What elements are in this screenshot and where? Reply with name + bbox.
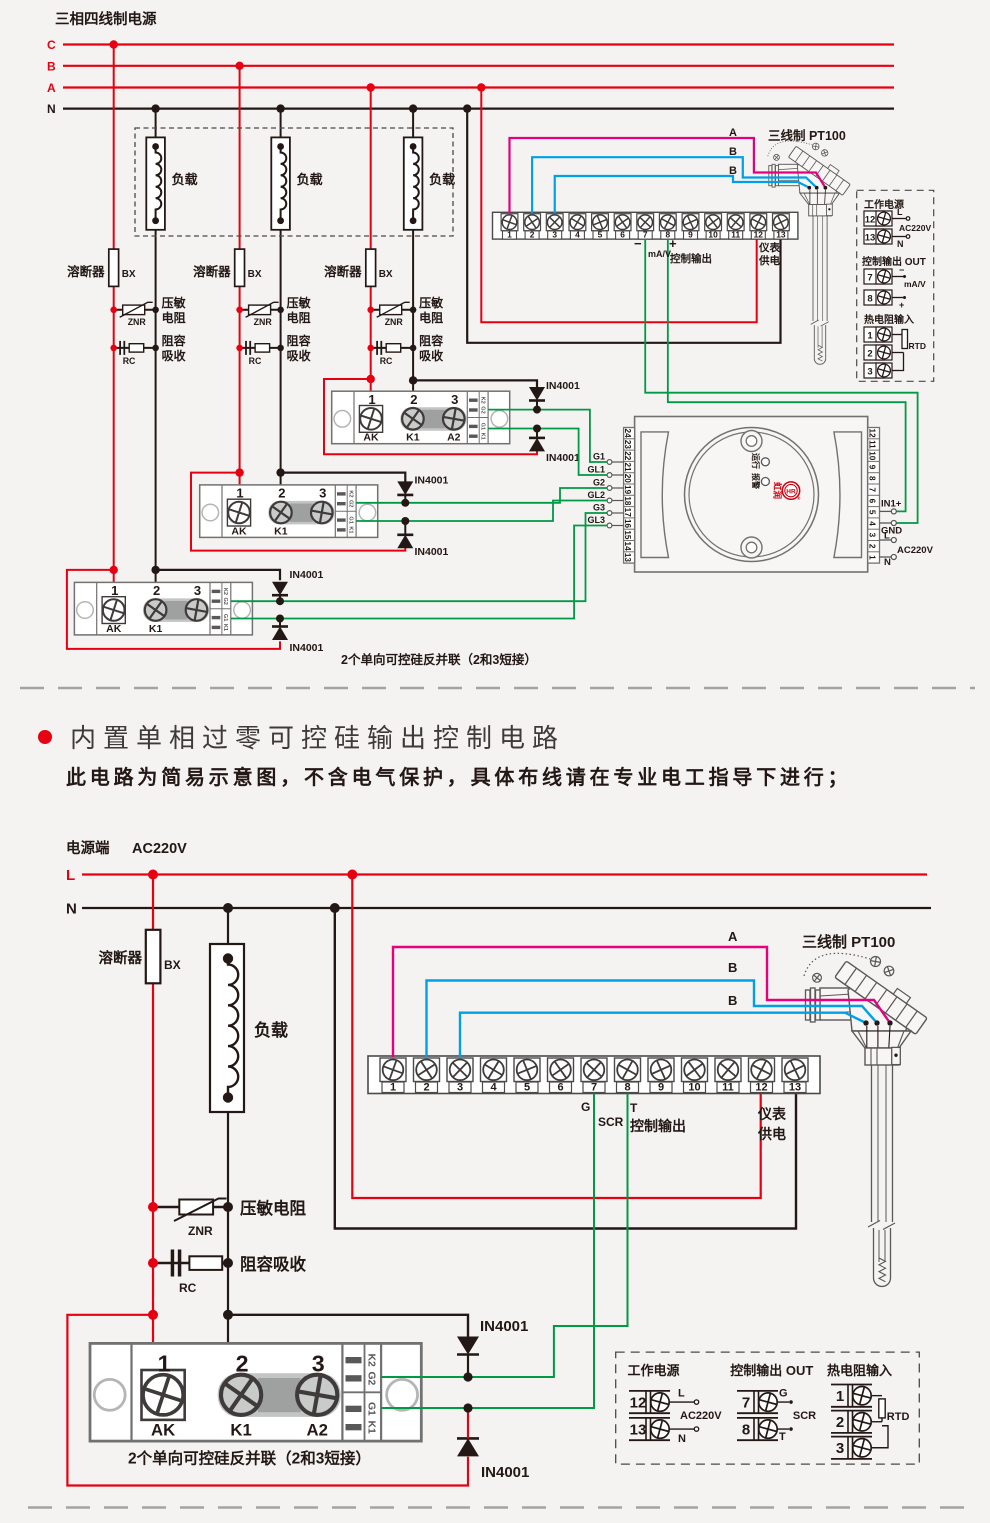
svg-text:13: 13: [789, 1082, 801, 1094]
svg-text:4: 4: [490, 1082, 497, 1094]
svg-text:G2: G2: [366, 1371, 377, 1385]
svg-text:电阻: 电阻: [419, 310, 443, 325]
svg-text:N: N: [884, 557, 891, 568]
svg-text:AK: AK: [151, 1421, 175, 1440]
svg-text:K1: K1: [222, 624, 228, 631]
svg-text:L: L: [884, 531, 890, 542]
svg-text:负载: 负载: [254, 1020, 288, 1040]
svg-text:8: 8: [868, 476, 877, 481]
svg-text:IN4001: IN4001: [415, 475, 449, 487]
svg-text:RC: RC: [179, 1281, 197, 1295]
svg-text:G1: G1: [366, 1402, 377, 1416]
svg-text:阻容吸收: 阻容吸收: [240, 1254, 307, 1274]
svg-text:供电: 供电: [757, 1126, 786, 1142]
svg-text:1: 1: [868, 555, 877, 560]
svg-text:3: 3: [867, 367, 872, 378]
svg-text:2: 2: [868, 544, 877, 549]
svg-text:1: 1: [111, 583, 118, 598]
svg-text:12: 12: [630, 1395, 647, 1412]
svg-text:N: N: [897, 239, 904, 249]
svg-text:运行: 运行: [751, 453, 761, 469]
svg-text:5: 5: [524, 1082, 530, 1094]
svg-text:−: −: [899, 265, 904, 275]
svg-text:B: B: [729, 165, 737, 177]
svg-text:吸收: 吸收: [162, 348, 186, 363]
svg-text:1: 1: [390, 1082, 396, 1094]
svg-text:A: A: [729, 127, 737, 139]
svg-text:RC: RC: [249, 356, 262, 366]
svg-text:K1: K1: [366, 1420, 377, 1434]
svg-text:7: 7: [742, 1395, 750, 1412]
svg-text:12: 12: [865, 215, 876, 226]
svg-text:控制输出: 控制输出: [670, 252, 712, 265]
svg-text:电源端: 电源端: [66, 839, 110, 857]
svg-text:3: 3: [836, 1440, 844, 1457]
svg-text:+: +: [669, 236, 677, 251]
svg-text:工作电源: 工作电源: [628, 1363, 680, 1378]
svg-text:B: B: [47, 59, 56, 73]
svg-text:AC220V: AC220V: [680, 1410, 722, 1422]
svg-text:19: 19: [623, 485, 632, 495]
svg-text:8: 8: [867, 294, 872, 305]
svg-text:9: 9: [658, 1082, 664, 1094]
svg-text:ZNR: ZNR: [128, 317, 147, 327]
svg-text:K1: K1: [479, 433, 485, 440]
svg-text:12: 12: [868, 429, 877, 439]
svg-text:K1: K1: [149, 623, 163, 635]
svg-text:ZNR: ZNR: [188, 1224, 213, 1238]
svg-text:供电: 供电: [758, 254, 780, 267]
svg-text:10: 10: [708, 230, 718, 240]
svg-text:L: L: [678, 1388, 685, 1400]
svg-text:1: 1: [867, 331, 873, 342]
svg-text:虹润: 虹润: [773, 482, 783, 500]
svg-text:溶断器: 溶断器: [193, 264, 231, 279]
svg-text:14: 14: [623, 542, 632, 552]
svg-text:IN1+: IN1+: [881, 499, 902, 510]
svg-text:17: 17: [623, 508, 632, 518]
svg-text:6: 6: [557, 1082, 563, 1094]
svg-text:N: N: [66, 901, 77, 918]
svg-text:G1: G1: [479, 423, 485, 430]
svg-text:吸收: 吸收: [419, 348, 443, 363]
svg-text:2个单向可控硅反并联（2和3短接）: 2个单向可控硅反并联（2和3短接）: [341, 652, 537, 667]
svg-text:吸收: 吸收: [287, 348, 311, 363]
svg-text:压敏: 压敏: [419, 295, 444, 310]
svg-text:5: 5: [598, 230, 603, 240]
svg-text:溶断器: 溶断器: [67, 264, 105, 279]
svg-text:AC220V: AC220V: [897, 545, 934, 556]
svg-text:仪表: 仪表: [757, 1106, 787, 1122]
svg-text:阻容: 阻容: [419, 333, 443, 348]
svg-text:20: 20: [623, 474, 632, 484]
svg-text:G1: G1: [222, 614, 228, 621]
svg-text:12: 12: [754, 230, 764, 240]
svg-text:GL3: GL3: [587, 515, 605, 525]
svg-text:2: 2: [836, 1414, 844, 1431]
svg-text:BX: BX: [164, 958, 181, 972]
svg-text:K2: K2: [366, 1353, 377, 1367]
svg-text:G2: G2: [593, 478, 605, 488]
svg-text:三线制 PT100: 三线制 PT100: [768, 128, 846, 143]
svg-text:电阻: 电阻: [162, 310, 186, 325]
svg-text:IN4001: IN4001: [481, 1464, 529, 1481]
svg-text:11: 11: [731, 230, 740, 240]
svg-text:AC220V: AC220V: [899, 223, 931, 233]
svg-text:T: T: [779, 1431, 786, 1443]
svg-text:1: 1: [507, 230, 512, 240]
svg-text:IN4001: IN4001: [480, 1318, 528, 1335]
svg-text:2: 2: [278, 486, 285, 501]
svg-text:RC: RC: [380, 356, 393, 366]
svg-text:6: 6: [620, 230, 625, 240]
svg-text:压敏: 压敏: [287, 295, 312, 310]
svg-text:2个单向可控硅反并联（2和3短接）: 2个单向可控硅反并联（2和3短接）: [128, 1449, 371, 1468]
svg-text:负载: 负载: [172, 172, 198, 187]
svg-text:L: L: [66, 867, 75, 884]
svg-text:电阻: 电阻: [287, 310, 311, 325]
svg-text:3: 3: [319, 486, 326, 501]
svg-text:RC: RC: [123, 356, 136, 366]
svg-text:21: 21: [623, 462, 632, 472]
svg-text:阻容: 阻容: [162, 333, 186, 348]
svg-text:13: 13: [630, 1422, 647, 1439]
svg-text:IN4001: IN4001: [290, 642, 324, 654]
svg-text:15: 15: [623, 530, 632, 540]
svg-text:3: 3: [457, 1082, 463, 1094]
svg-text:GL2: GL2: [587, 490, 605, 500]
svg-text:N: N: [47, 102, 56, 116]
svg-text:24: 24: [623, 429, 632, 439]
svg-text:A: A: [728, 929, 738, 944]
svg-text:压敏: 压敏: [162, 295, 187, 310]
svg-text:A2: A2: [306, 1421, 327, 1440]
svg-text:10: 10: [868, 451, 877, 461]
svg-text:ZNR: ZNR: [385, 317, 404, 327]
svg-text:ZNR: ZNR: [254, 317, 273, 327]
svg-text:溶断器: 溶断器: [324, 264, 362, 279]
svg-text:溶断器: 溶断器: [99, 949, 143, 967]
svg-text:11: 11: [868, 440, 877, 449]
svg-text:AK: AK: [106, 623, 122, 635]
svg-text:3: 3: [194, 583, 201, 598]
svg-text:13: 13: [623, 553, 632, 563]
svg-text:2: 2: [153, 583, 160, 598]
svg-text:1: 1: [158, 1351, 171, 1377]
svg-text:1: 1: [368, 392, 375, 407]
svg-text:7: 7: [643, 230, 648, 240]
svg-text:阻容: 阻容: [287, 333, 311, 348]
svg-text:K1: K1: [347, 526, 353, 533]
svg-text:G2: G2: [479, 406, 485, 413]
svg-text:T: T: [630, 1101, 638, 1115]
svg-text:18: 18: [623, 496, 632, 506]
svg-text:8: 8: [624, 1082, 630, 1094]
svg-text:三相四线制电源: 三相四线制电源: [55, 10, 157, 28]
svg-text:RTD: RTD: [887, 1411, 910, 1423]
svg-text:BX: BX: [379, 269, 393, 280]
svg-text:C: C: [47, 38, 56, 52]
svg-text:G2: G2: [222, 597, 228, 604]
svg-text:4: 4: [575, 230, 580, 240]
svg-text:6: 6: [868, 499, 877, 504]
svg-text:3: 3: [451, 392, 458, 407]
svg-text:7: 7: [867, 273, 872, 284]
svg-text:5: 5: [868, 510, 877, 515]
svg-text:B: B: [728, 960, 737, 975]
svg-text:热电阻输入: 热电阻输入: [827, 1363, 892, 1378]
svg-text:压敏电阻: 压敏电阻: [240, 1198, 307, 1218]
svg-text:K1: K1: [230, 1421, 251, 1440]
svg-text:N: N: [678, 1433, 686, 1445]
svg-text:2: 2: [410, 392, 417, 407]
svg-text:2: 2: [530, 230, 535, 240]
svg-text:仪表: 仪表: [758, 241, 780, 254]
svg-text:2: 2: [236, 1351, 249, 1377]
svg-text:mA/V: mA/V: [648, 249, 671, 259]
svg-text:12: 12: [755, 1082, 767, 1094]
svg-text:负载: 负载: [429, 172, 455, 187]
svg-text:8: 8: [742, 1422, 750, 1439]
svg-text:内置单相过零可控硅输出控制电路: 内置单相过零可控硅输出控制电路: [70, 723, 565, 753]
svg-text:K2: K2: [347, 490, 353, 497]
svg-text:A2: A2: [447, 432, 461, 444]
svg-text:BX: BX: [122, 269, 136, 280]
svg-text:22: 22: [623, 451, 632, 461]
svg-text:AK: AK: [231, 525, 247, 537]
svg-text:G1: G1: [347, 516, 353, 523]
svg-text:G: G: [779, 1388, 788, 1400]
svg-text:7: 7: [868, 487, 877, 492]
svg-text:IN4001: IN4001: [546, 452, 580, 464]
svg-text:SCR: SCR: [793, 1410, 816, 1422]
svg-text:K2: K2: [479, 397, 485, 404]
svg-text:1: 1: [236, 486, 243, 501]
svg-text:11: 11: [722, 1082, 734, 1094]
svg-text:热电阻输入: 热电阻输入: [864, 313, 914, 326]
svg-text:控制输出 OUT: 控制输出 OUT: [862, 255, 926, 268]
svg-text:HR: HR: [786, 489, 796, 496]
svg-text:B: B: [728, 993, 737, 1008]
svg-text:G3: G3: [593, 503, 605, 513]
svg-text:3: 3: [312, 1351, 325, 1377]
svg-text:GL1: GL1: [587, 465, 605, 475]
svg-text:BX: BX: [248, 269, 262, 280]
svg-text:控制输出 OUT: 控制输出 OUT: [730, 1363, 813, 1378]
svg-text:三线制 PT100: 三线制 PT100: [802, 933, 895, 951]
svg-text:mA/V: mA/V: [904, 279, 926, 289]
svg-text:+: +: [899, 300, 904, 310]
svg-text:IN4001: IN4001: [415, 546, 449, 558]
svg-text:报警: 报警: [751, 473, 761, 489]
svg-text:B: B: [729, 146, 737, 158]
svg-text:7: 7: [591, 1082, 597, 1094]
svg-text:负载: 负载: [297, 172, 323, 187]
svg-text:9: 9: [688, 230, 693, 240]
svg-text:23: 23: [623, 440, 632, 450]
svg-text:IN4001: IN4001: [546, 380, 580, 392]
svg-text:RTD: RTD: [909, 341, 926, 351]
svg-text:16: 16: [623, 519, 632, 529]
svg-text:A: A: [47, 81, 56, 95]
svg-text:AK: AK: [363, 432, 379, 444]
svg-text:2: 2: [867, 349, 872, 360]
svg-text:3: 3: [552, 230, 557, 240]
svg-text:G1: G1: [593, 452, 605, 462]
svg-text:IN4001: IN4001: [290, 569, 324, 581]
svg-text:10: 10: [688, 1082, 700, 1094]
svg-text:G: G: [581, 1100, 590, 1114]
svg-text:K1: K1: [406, 432, 420, 444]
svg-text:K2: K2: [222, 588, 228, 595]
svg-text:13: 13: [865, 233, 876, 244]
svg-text:9: 9: [868, 465, 877, 470]
svg-text:此电路为简易示意图，不含电气保护，具体布线请在专业电工指导下: 此电路为简易示意图，不含电气保护，具体布线请在专业电工指导下进行；: [66, 765, 851, 789]
svg-text:控制输出: 控制输出: [630, 1118, 686, 1134]
svg-text:K1: K1: [274, 525, 288, 537]
svg-text:L: L: [897, 207, 903, 217]
svg-text:1: 1: [836, 1388, 844, 1405]
svg-text:4: 4: [868, 521, 877, 526]
svg-text:3: 3: [868, 533, 877, 538]
svg-text:13: 13: [776, 230, 786, 240]
svg-text:−: −: [634, 236, 642, 251]
svg-text:G2: G2: [347, 500, 353, 507]
svg-text:AC220V: AC220V: [132, 841, 187, 857]
svg-text:SCR: SCR: [598, 1115, 624, 1129]
svg-text:2: 2: [423, 1082, 429, 1094]
